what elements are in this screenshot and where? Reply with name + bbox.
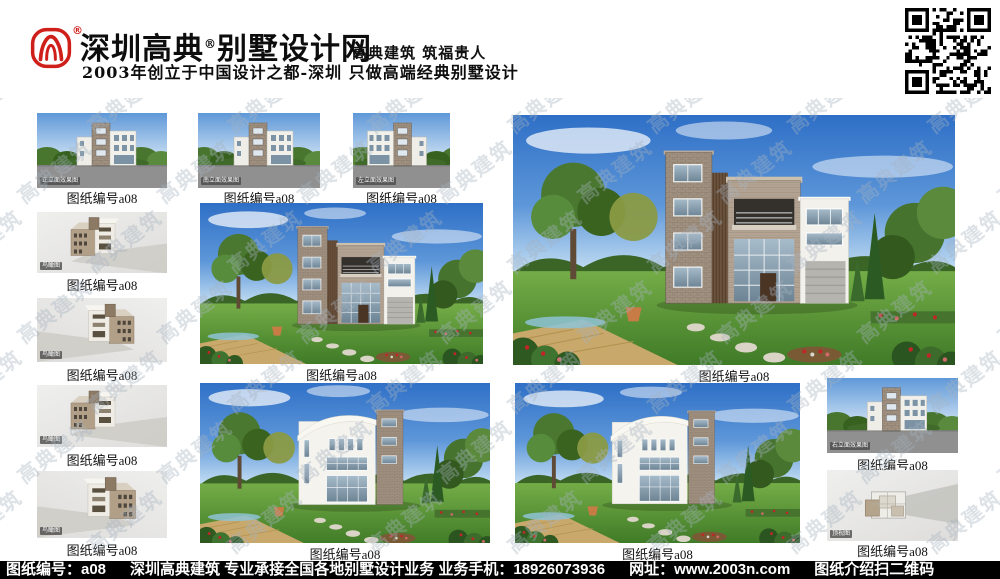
watermark-text: 高典建筑 bbox=[990, 412, 1000, 489]
qr-code-icon bbox=[903, 8, 993, 94]
brand-logo-icon bbox=[30, 26, 72, 70]
view-type-badge: 顶视图 bbox=[830, 530, 852, 538]
drawing-number-caption: 图纸编号a08 bbox=[827, 541, 958, 556]
drawing-number-caption: 图纸编号a08 bbox=[37, 188, 167, 203]
footer-drawing-number: 图纸编号：a08 bbox=[6, 561, 106, 579]
render-main-perspective bbox=[513, 115, 955, 365]
watermark-text: 高典建筑 bbox=[0, 98, 28, 139]
drawing-number-caption: 图纸编号a08 bbox=[515, 544, 800, 559]
thumb-birdseye-model-4: 鸟瞰图 bbox=[37, 471, 167, 538]
view-type-badge: 鸟瞰图 bbox=[40, 262, 62, 270]
drawing-number-caption: 图纸编号a08 bbox=[200, 544, 490, 559]
thumb-left-elevation: 左立面效果图 bbox=[353, 113, 450, 188]
view-type-badge: 正立面效果图 bbox=[40, 177, 80, 185]
footer-website: 网址：www.2003n.com bbox=[629, 561, 790, 579]
brand-subtitle: 2003年创立于中国设计之都-深圳 只做高端经典别墅设计 bbox=[82, 59, 519, 83]
drawing-number-caption: 图纸编号a08 bbox=[37, 450, 167, 465]
view-type-badge: 鸟瞰图 bbox=[40, 527, 62, 535]
thumb-birdseye-model-1: 鸟瞰图 bbox=[37, 212, 167, 273]
view-type-badge: 右立面效果图 bbox=[830, 442, 870, 450]
view-type-badge: 鸟瞰图 bbox=[40, 351, 62, 359]
drawing-number-caption: 图纸编号a08 bbox=[37, 275, 167, 290]
thumb-right-elevation: 右立面效果图 bbox=[827, 378, 958, 453]
footer-business-info: 深圳高典建筑 专业承接全国各地别墅设计业务 业务手机：18926073936 bbox=[130, 561, 605, 579]
footer-bar: 图纸编号：a08 深圳高典建筑 专业承接全国各地别墅设计业务 业务手机：1892… bbox=[0, 561, 1000, 579]
drawing-number-caption: 图纸编号a08 bbox=[37, 540, 167, 555]
render-rear-perspective-1 bbox=[200, 383, 490, 543]
thumb-birdseye-model-2: 鸟瞰图 bbox=[37, 298, 167, 362]
main-perspective-render bbox=[513, 115, 955, 365]
watermark-text: 高典建筑 bbox=[0, 342, 28, 419]
drawing-number-caption: 图纸编号a08 bbox=[200, 365, 483, 380]
watermark-text: 高典建筑 bbox=[990, 272, 1000, 349]
thumb-top-view: 顶视图 bbox=[827, 470, 958, 541]
render-front-perspective bbox=[200, 203, 483, 364]
watermark-text: 高典建筑 bbox=[0, 202, 28, 279]
thumb-front-elevation: 正立面效果图 bbox=[37, 113, 167, 188]
thumb-south-elevation: 南立面效果图 bbox=[198, 113, 320, 188]
view-type-badge: 鸟瞰图 bbox=[40, 436, 62, 444]
footer-qr-hint: 图纸介绍扫二维码 bbox=[814, 561, 934, 579]
view-type-badge: 左立面效果图 bbox=[356, 177, 396, 185]
front-perspective-render bbox=[200, 203, 483, 364]
thumb-birdseye-model-3: 鸟瞰图 bbox=[37, 385, 167, 447]
drawing-number-caption: 图纸编号a08 bbox=[198, 188, 320, 203]
drawing-number-caption: 图纸编号a08 bbox=[827, 455, 958, 470]
view-type-badge: 南立面效果图 bbox=[201, 177, 241, 185]
watermark-text: 高典建筑 bbox=[0, 482, 28, 558]
rear-perspective-render bbox=[200, 383, 490, 543]
drawing-number-caption: 图纸编号a08 bbox=[37, 365, 167, 380]
title-registered-mark: ® bbox=[204, 37, 217, 51]
watermark-text: 高典建筑 bbox=[990, 132, 1000, 209]
render-rear-perspective-2 bbox=[515, 383, 800, 543]
rear-perspective-render bbox=[515, 383, 800, 543]
poster-page: ® 深圳高典®别墅设计网 高典建筑 筑福贵人 2003年创立于中国设计之都-深圳… bbox=[0, 0, 1000, 579]
drawing-number-caption: 图纸编号a08 bbox=[353, 188, 450, 203]
